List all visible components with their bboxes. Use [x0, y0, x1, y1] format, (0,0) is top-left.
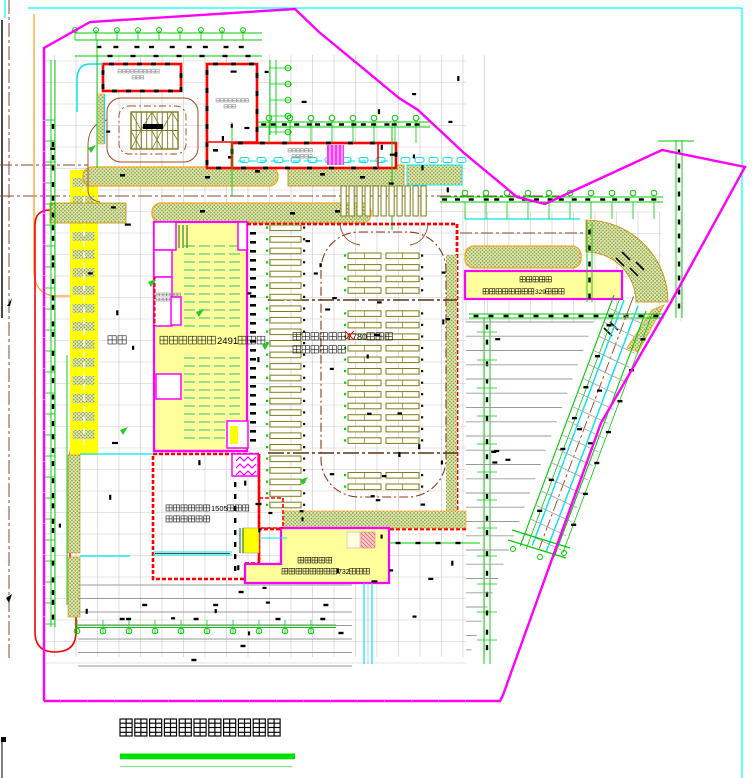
svg-text:7780: 7780 — [347, 332, 367, 342]
svg-text:732: 732 — [338, 569, 350, 576]
svg-text:329: 329 — [535, 289, 546, 296]
svg-text:2491: 2491 — [217, 336, 238, 347]
svg-text:1505: 1505 — [211, 504, 228, 513]
